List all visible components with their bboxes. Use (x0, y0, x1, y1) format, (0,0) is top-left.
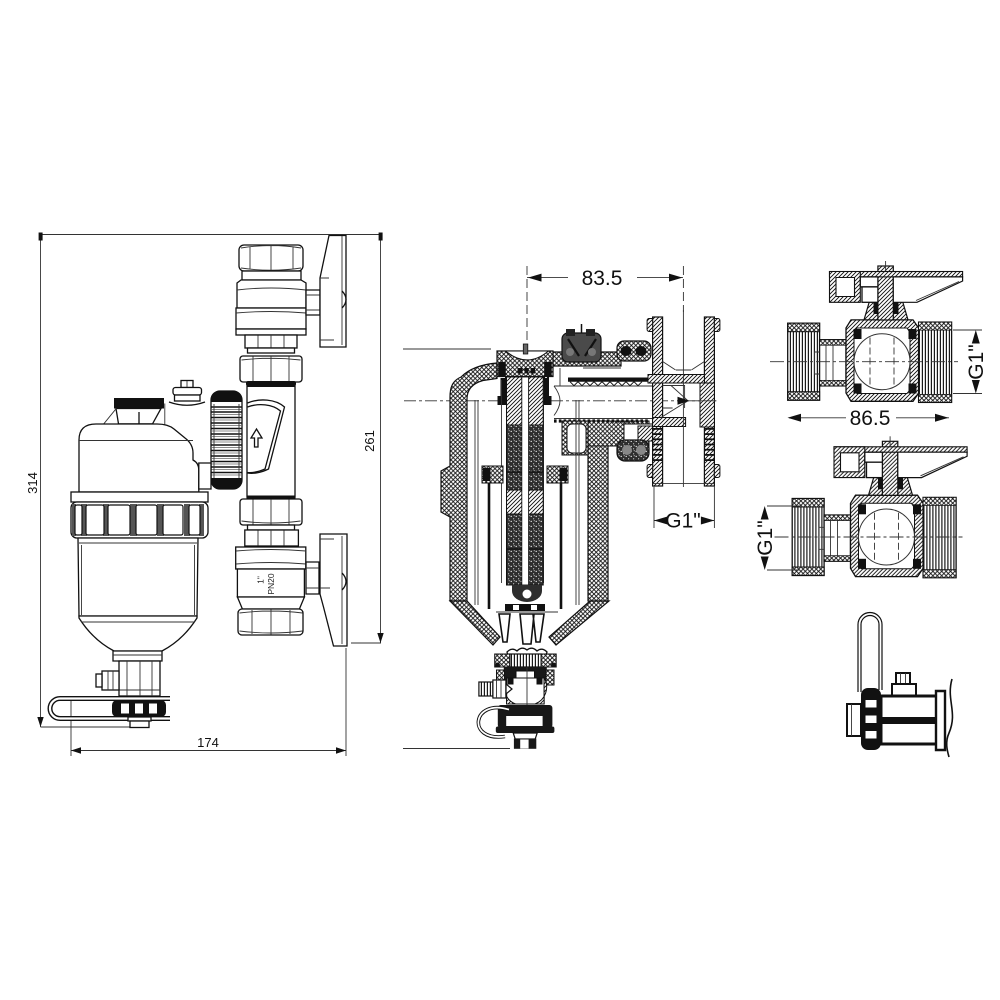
svg-text:G1": G1" (665, 510, 700, 533)
svg-text:1": 1" (256, 576, 266, 584)
svg-text:G1": G1" (965, 344, 988, 379)
svg-text:174: 174 (197, 735, 219, 750)
svg-text:G1": G1" (754, 520, 777, 555)
svg-text:PN20: PN20 (266, 573, 276, 595)
svg-text:261: 261 (362, 430, 377, 452)
svg-text:83.5: 83.5 (582, 267, 623, 290)
svg-text:86.5: 86.5 (850, 407, 891, 430)
svg-text:314: 314 (25, 472, 40, 494)
